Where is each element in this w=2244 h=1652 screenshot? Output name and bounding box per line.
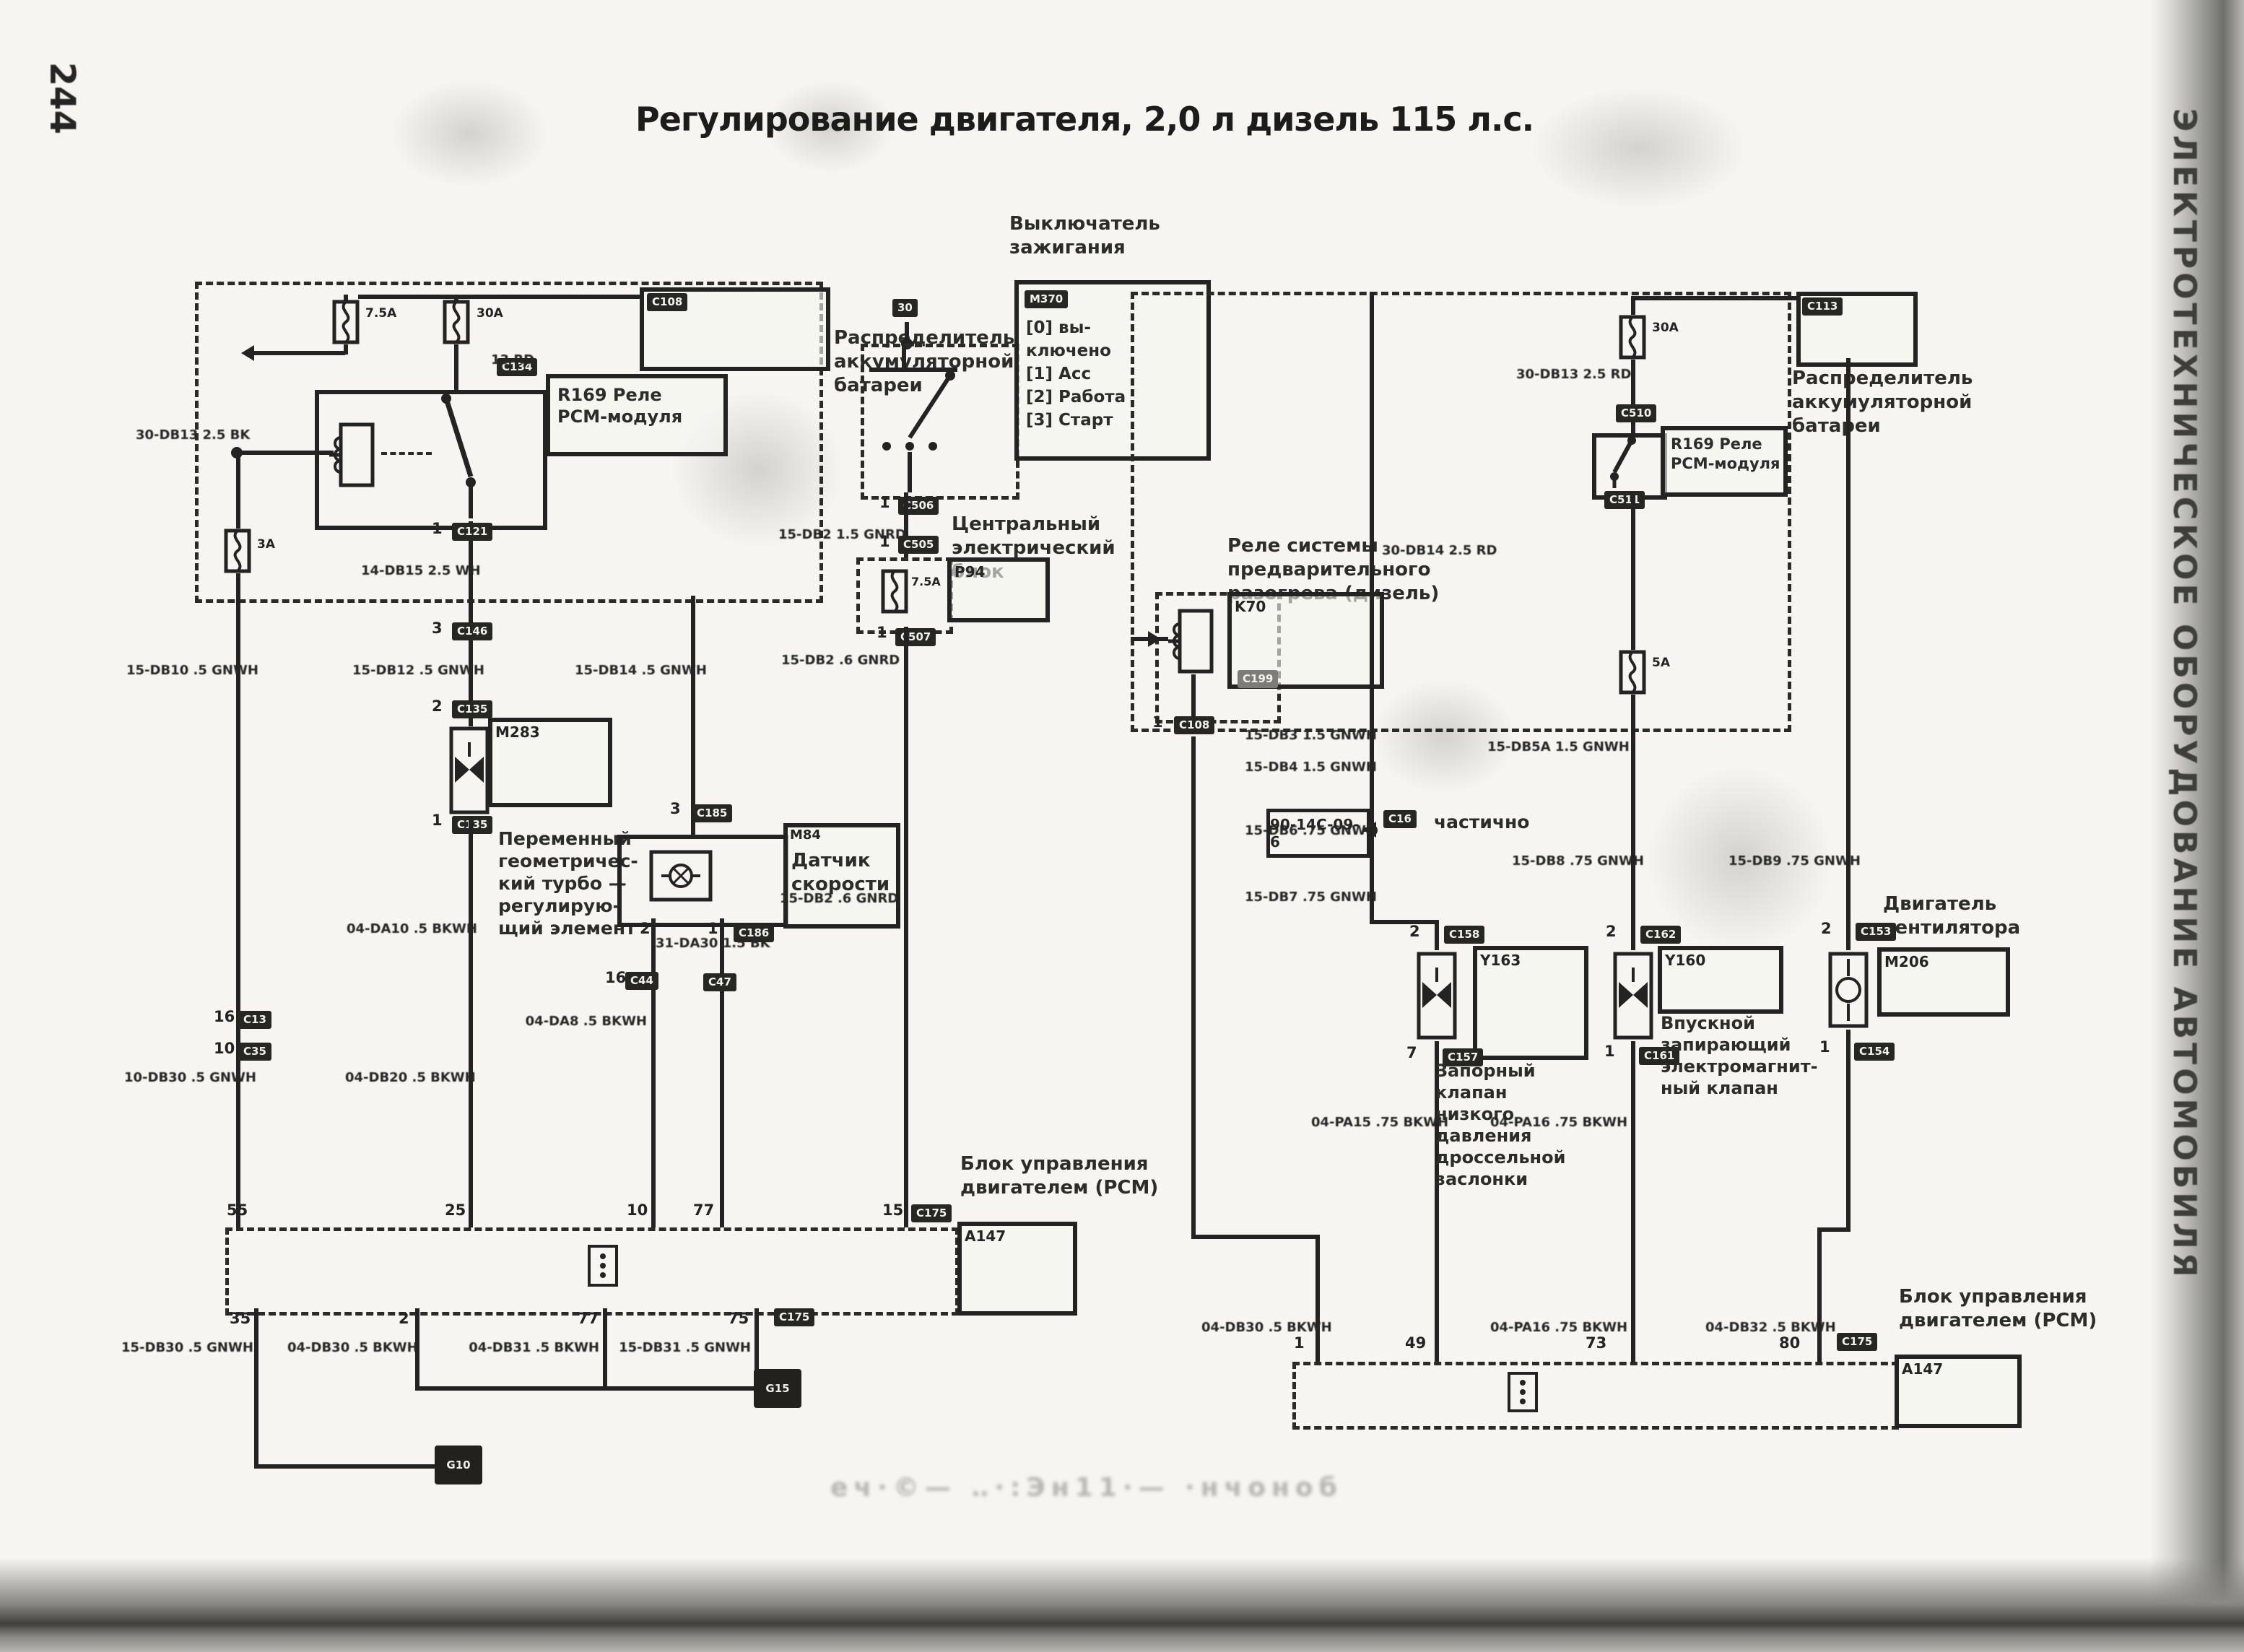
solenoid-valve-icon bbox=[448, 725, 491, 816]
label-line: Центральный bbox=[952, 513, 1154, 536]
label-line: ный клапан bbox=[1661, 1077, 1812, 1099]
wire-label: 04-DB32 .5 BKWH bbox=[1705, 1320, 1814, 1335]
wire bbox=[254, 1308, 258, 1469]
component-tag: M84 bbox=[790, 827, 821, 843]
pin-number: 3 bbox=[670, 800, 681, 817]
label-line: Выключатель bbox=[1009, 212, 1197, 236]
pin-number: 49 bbox=[1405, 1334, 1426, 1352]
pcm-module-icon bbox=[586, 1243, 619, 1288]
pin-number: 55 bbox=[227, 1201, 248, 1219]
wire-label: 15-DB10 .5 GNWH bbox=[126, 663, 233, 678]
ignition-switch-label: Выключатель зажигания bbox=[1009, 212, 1197, 260]
wire bbox=[1817, 1227, 1822, 1362]
label-line: электромагнит- bbox=[1661, 1056, 1812, 1077]
wire-label: 15-DB30 .5 GNWH bbox=[121, 1340, 251, 1355]
wire-label: 15-DB6 .75 GNWH bbox=[1245, 823, 1366, 838]
relay-switch-icon bbox=[1596, 435, 1656, 488]
fuse-icon bbox=[331, 300, 361, 344]
connector-tag: C158 bbox=[1444, 926, 1484, 944]
pcm-label-right: Блок управления двигателем (PCM) bbox=[1899, 1285, 2101, 1333]
wire bbox=[415, 1308, 419, 1391]
crossref-note: частично bbox=[1434, 810, 1529, 834]
pin-number: 16 bbox=[605, 969, 626, 986]
fuse-rating: 3A bbox=[257, 537, 275, 552]
component-tag: M206 bbox=[1884, 953, 1929, 970]
wire-label: 15-DB2 .6 GNRD bbox=[780, 891, 894, 906]
wire bbox=[691, 596, 695, 836]
wire bbox=[1633, 296, 1796, 300]
wire bbox=[1315, 1235, 1320, 1362]
label-line: дроссельной bbox=[1435, 1147, 1594, 1168]
relay-coil-icon bbox=[329, 422, 380, 488]
connector-tag: C153 bbox=[1856, 923, 1896, 941]
pin-number: 1 bbox=[879, 494, 890, 511]
wire bbox=[720, 918, 724, 1227]
wire-label: 04-PA16 .75 BKWH bbox=[1490, 1320, 1626, 1335]
label-line: Блок управления bbox=[960, 1152, 1162, 1176]
wire bbox=[256, 1464, 437, 1469]
wire-label: 10-DB30 .5 GNWH bbox=[124, 1070, 232, 1085]
connector-tag: C13 bbox=[238, 1011, 271, 1029]
connector-tag: C16 bbox=[1383, 810, 1417, 828]
wire-label: 15-DB14 .5 GNWH bbox=[575, 663, 686, 678]
wire-label: 15-DB4 1.5 GNWH bbox=[1245, 760, 1366, 775]
wire bbox=[358, 295, 640, 299]
label-line: двигателем (PCM) bbox=[960, 1176, 1162, 1200]
pin-number: 75 bbox=[728, 1310, 749, 1327]
wire bbox=[1631, 1041, 1635, 1362]
wire bbox=[469, 816, 473, 1227]
label-line: Датчик bbox=[791, 849, 885, 873]
fuse-icon bbox=[1617, 650, 1648, 695]
speed-sensor-icon bbox=[648, 849, 713, 903]
ignition-switch-icon bbox=[849, 345, 993, 492]
page-number: 244 bbox=[42, 62, 82, 134]
wire-label: 15-DB31 .5 GNWH bbox=[618, 1340, 751, 1355]
pcm-label-left: Блок управления двигателем (PCM) bbox=[960, 1152, 1162, 1200]
fuse-rating: 30A bbox=[1652, 321, 1679, 335]
pin-number: 1 bbox=[1604, 1043, 1615, 1060]
connector-tag: C175 bbox=[1837, 1333, 1877, 1351]
label-line: двигателем (PCM) bbox=[1899, 1309, 2101, 1333]
connector-tag: C185 bbox=[692, 804, 732, 822]
scan-smudge bbox=[1531, 87, 1747, 209]
fuse-icon bbox=[222, 529, 253, 573]
wire-label: 15-DB2 1.5 GNRD bbox=[778, 527, 894, 542]
connector-tag: C113 bbox=[1802, 297, 1843, 316]
connector-tag: C121 bbox=[452, 523, 492, 541]
wire bbox=[454, 344, 458, 390]
label-line: Распределитель bbox=[1792, 367, 1980, 391]
wire-label: 15-DB8 .75 GNWH bbox=[1512, 853, 1626, 869]
wire-label: 04-DA10 .5 BKWH bbox=[347, 921, 462, 936]
connector-tag: C47 bbox=[703, 973, 736, 991]
wire bbox=[1191, 1235, 1320, 1239]
wire-label: 14-DB15 2.5 WH bbox=[361, 563, 462, 578]
pin-number: 1 bbox=[432, 520, 443, 537]
wire-label: 04-DA8 .5 BKWH bbox=[524, 1014, 647, 1029]
bleed-through-text: еч·©— ‥·:Эн11·— ·нчоноб bbox=[830, 1473, 1343, 1503]
label-line: зажигания bbox=[1009, 236, 1197, 260]
solenoid-valve-icon bbox=[1612, 950, 1655, 1041]
pin-number: 35 bbox=[230, 1310, 251, 1327]
connector-tag: C146 bbox=[452, 622, 492, 640]
component-tag: M283 bbox=[495, 723, 540, 741]
wire-label: 31-DA30 1.5 BK bbox=[656, 936, 771, 951]
intake-valve-label: Впускной запирающий электромагнит- ный к… bbox=[1661, 1012, 1812, 1099]
scan-smudge bbox=[390, 79, 549, 188]
wire bbox=[238, 451, 334, 455]
pin-number: 15 bbox=[882, 1201, 903, 1219]
connector-tag: C108 bbox=[1174, 716, 1214, 734]
wire-label: 15-DB12 .5 GNWH bbox=[352, 663, 462, 678]
connector-tag: C162 bbox=[1640, 926, 1681, 944]
pin-number: 7 bbox=[1406, 1044, 1417, 1061]
wire-label: 04-DB30 .5 BKWH bbox=[287, 1340, 412, 1355]
fuse-rating: 30A bbox=[477, 306, 503, 321]
pin-number: 10 bbox=[214, 1040, 235, 1057]
relay-switch-icon bbox=[429, 391, 494, 518]
component-tag: Y160 bbox=[1665, 952, 1705, 969]
pcm-relay-callout-left: R169 Реле PCM-модуля bbox=[546, 374, 728, 456]
wire bbox=[1817, 1227, 1851, 1232]
connector-tag: C135 bbox=[452, 700, 492, 718]
pin-number: 1 bbox=[1819, 1038, 1830, 1056]
connector-tag: C175 bbox=[911, 1204, 952, 1222]
page-curl-shadow bbox=[0, 1558, 2244, 1652]
pin-number: 2 bbox=[432, 697, 443, 715]
wire bbox=[651, 918, 656, 1227]
arrow-right-icon bbox=[1148, 631, 1161, 647]
wire bbox=[1631, 296, 1635, 315]
pcm-relay-callout-right: R169 Реле PCM-модуля bbox=[1661, 426, 1788, 497]
wire-label: 04-PA16 .75 BKWH bbox=[1490, 1115, 1626, 1130]
wire bbox=[1191, 674, 1196, 716]
wire-label: 13 RD bbox=[491, 352, 556, 368]
wire bbox=[904, 627, 908, 1227]
wire bbox=[1191, 736, 1196, 1238]
pin-number: 1 bbox=[1152, 713, 1163, 731]
wire bbox=[1846, 1030, 1851, 1230]
connector-tag: C510 bbox=[1616, 404, 1656, 422]
wire bbox=[1435, 920, 1439, 950]
pin-number: 1 bbox=[877, 624, 887, 641]
pcm-module-icon bbox=[1506, 1370, 1539, 1414]
pin-number: 2 bbox=[1821, 920, 1832, 937]
fan-motor-icon bbox=[1827, 950, 1870, 1030]
wire-label: 15-DB5A 1.5 GNWH bbox=[1487, 739, 1626, 755]
wire bbox=[1370, 920, 1439, 924]
connector-tag: 30 bbox=[892, 299, 918, 317]
fan-motor-label: Двигатель вентилятора bbox=[1883, 892, 2042, 940]
connector-tag: C507 bbox=[895, 628, 936, 646]
wire-label: 04-DB30 .5 BKWH bbox=[1201, 1320, 1310, 1335]
label-line: заслонки bbox=[1435, 1168, 1594, 1190]
component-tag: A147 bbox=[965, 1227, 1006, 1245]
connector-tag: C44 bbox=[625, 972, 658, 990]
pin-number: 25 bbox=[445, 1201, 466, 1219]
arrow-left-icon bbox=[241, 345, 254, 361]
wire-label: 15-DB2 .6 GNRD bbox=[781, 653, 894, 668]
component-tag: K70 bbox=[1235, 598, 1266, 615]
fuse-icon bbox=[1617, 315, 1648, 360]
connector-tag: C35 bbox=[238, 1043, 271, 1061]
connector-tag: C108 bbox=[647, 293, 687, 311]
wire bbox=[254, 351, 345, 355]
wire-label: 30-DB14 2.5 RD bbox=[1382, 543, 1505, 558]
component-tag: Y163 bbox=[1480, 952, 1521, 969]
pin-number: 77 bbox=[578, 1310, 599, 1327]
label-line: PCM-модуля bbox=[557, 406, 731, 427]
label-line: Впускной bbox=[1661, 1012, 1812, 1034]
wire bbox=[417, 1386, 757, 1391]
pin-number: 77 bbox=[693, 1201, 714, 1219]
relay-link bbox=[381, 452, 432, 455]
wire bbox=[236, 451, 240, 529]
ground-tag: G15 bbox=[754, 1369, 801, 1408]
label-line: аккумуляторной bbox=[1792, 391, 1980, 414]
component-tag: P94 bbox=[954, 563, 986, 581]
page-title: Регулирование двигателя, 2,0 л дизель 11… bbox=[635, 100, 1534, 139]
connector-tag: C175 bbox=[774, 1308, 814, 1326]
label-line: Запорный клапан bbox=[1435, 1060, 1594, 1103]
connector-tag: C511 bbox=[1604, 491, 1645, 509]
wire-label: 04-PA15 .75 BKWH bbox=[1311, 1115, 1431, 1130]
label-line: батареи bbox=[1792, 414, 1980, 438]
fuse-icon bbox=[879, 569, 910, 614]
wire bbox=[1631, 360, 1635, 406]
speed-sensor-label: Датчик скорости bbox=[791, 849, 885, 897]
pin-number: 2 bbox=[640, 920, 651, 937]
pin-number: 16 bbox=[214, 1008, 235, 1025]
label-line: запирающий bbox=[1661, 1034, 1812, 1056]
label-line: Блок управления bbox=[1899, 1285, 2101, 1309]
battery-distribution-label-right: Распределитель аккумуляторной батареи bbox=[1792, 367, 1980, 438]
label-line: PCM-модуля bbox=[1671, 454, 1789, 474]
wire bbox=[1631, 695, 1635, 950]
sidebar-vertical-title: ЭЛЕКТРОТЕХНИЧЕСКОЕ ОБОРУДОВАНИЕ АВТОМОБИ… bbox=[2166, 108, 2203, 1336]
wire-label: 30-DB13 2.5 BK bbox=[136, 427, 237, 443]
label-line: R169 Реле bbox=[1671, 435, 1789, 454]
label-line: вентилятора bbox=[1883, 916, 2042, 940]
fuse-icon bbox=[441, 300, 471, 344]
pin-number: 1 bbox=[1294, 1334, 1305, 1352]
wire bbox=[603, 1308, 607, 1391]
solenoid-valve-icon bbox=[1415, 950, 1458, 1041]
wire-label: 04-DB20 .5 BKWH bbox=[345, 1070, 462, 1085]
pin-number: 73 bbox=[1586, 1334, 1606, 1352]
pin-number: 2 bbox=[1409, 923, 1420, 940]
connector-tag: C199 bbox=[1238, 670, 1278, 688]
connector-tag: C154 bbox=[1854, 1043, 1895, 1061]
label-line: R169 Реле bbox=[557, 384, 731, 406]
wire bbox=[1631, 492, 1635, 650]
wire-label: 15-DB7 .75 GNWH bbox=[1245, 890, 1366, 905]
label-line: Реле системы предварительного bbox=[1227, 534, 1545, 582]
relay-coil-icon bbox=[1168, 608, 1219, 674]
component-tag: M370 bbox=[1025, 290, 1068, 308]
wire-label: 04-DB31 .5 BKWH bbox=[468, 1340, 599, 1355]
fuse-rating: 7.5A bbox=[911, 575, 941, 588]
pin-number: 3 bbox=[432, 619, 443, 637]
ground-tag: G10 bbox=[435, 1445, 482, 1484]
component-tag: A147 bbox=[1902, 1360, 1943, 1378]
wire-label: 15-DB9 .75 GNWH bbox=[1728, 853, 1843, 869]
fuse-rating: 5A bbox=[1652, 656, 1670, 670]
pin-number: 1 bbox=[432, 812, 443, 829]
pin-number: 80 bbox=[1779, 1334, 1800, 1352]
fuse-rating: 7.5A bbox=[365, 306, 396, 321]
pin-number: 2 bbox=[1606, 923, 1617, 940]
label-line: Двигатель bbox=[1883, 892, 2042, 916]
pin-number: 10 bbox=[627, 1201, 648, 1219]
wire bbox=[1631, 422, 1635, 433]
pin-number: 2 bbox=[399, 1310, 409, 1327]
pcm-box-right bbox=[1292, 1362, 1899, 1430]
wire-label: 15-DB3 1.5 GNWH bbox=[1245, 728, 1366, 743]
pin-number: 1 bbox=[708, 920, 718, 937]
scanned-page: 244 Регулирование двигателя, 2,0 л дизел… bbox=[0, 0, 2244, 1652]
wire-label: 30-DB13 2.5 RD bbox=[1516, 367, 1626, 382]
